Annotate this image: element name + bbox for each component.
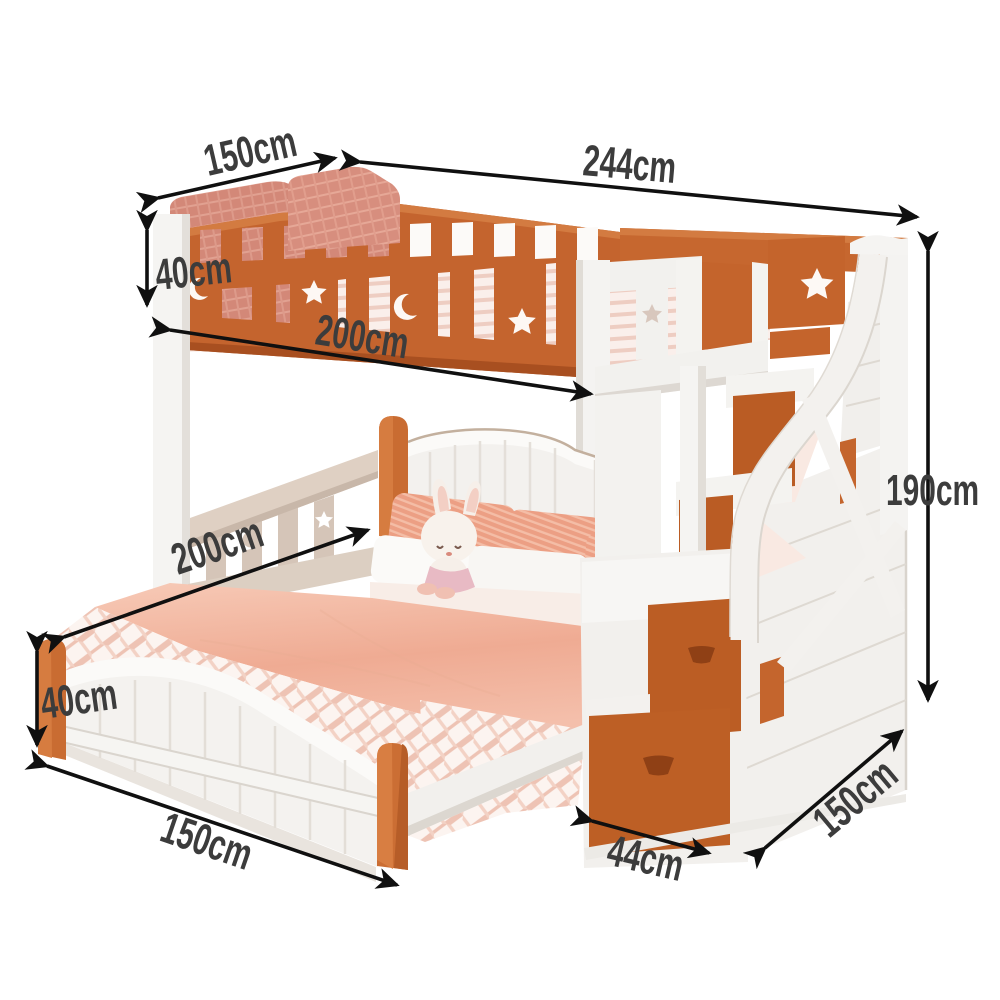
svg-text:244cm: 244cm bbox=[581, 135, 678, 192]
svg-text:40cm: 40cm bbox=[153, 242, 234, 299]
svg-text:190cm: 190cm bbox=[886, 465, 979, 514]
